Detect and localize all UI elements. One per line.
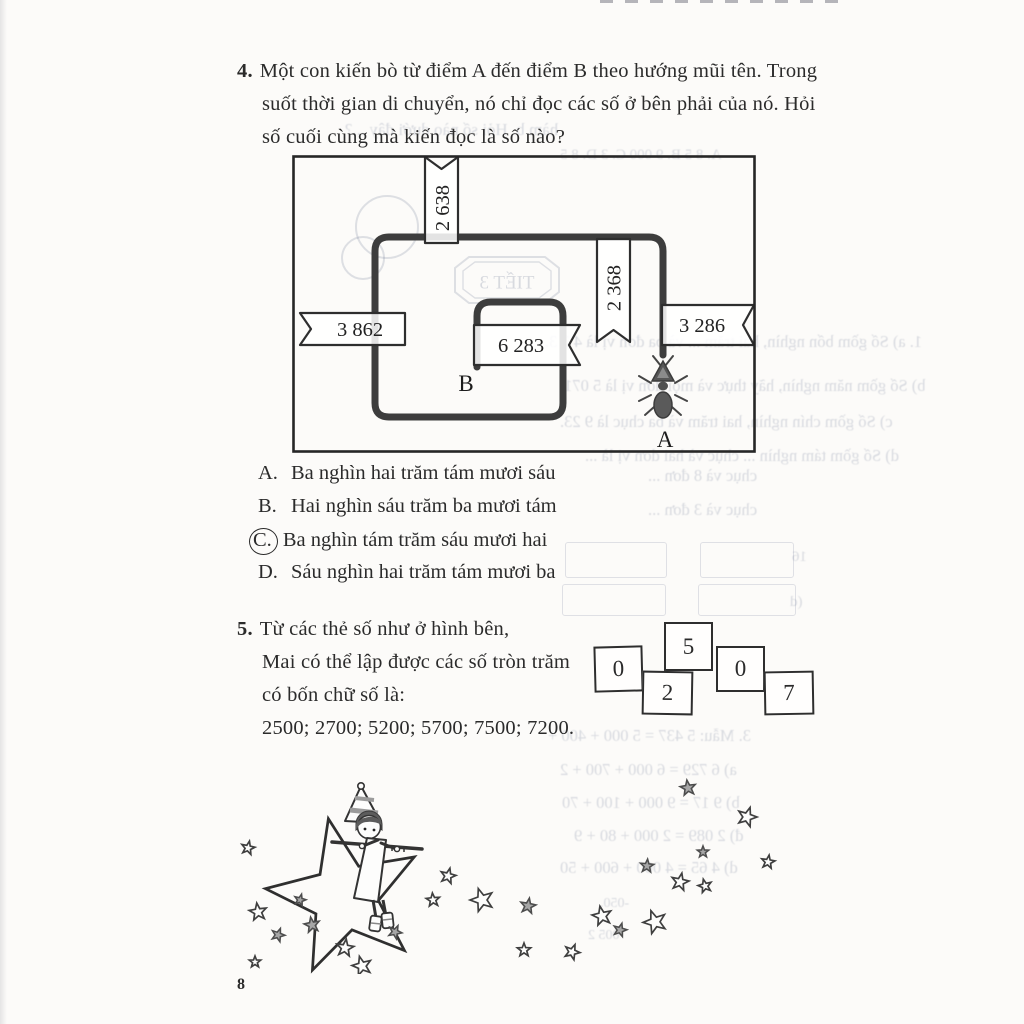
option-a-key: A.	[258, 462, 291, 485]
star-icon	[640, 858, 654, 872]
flag-upper-right: 2 368	[597, 239, 630, 342]
problem-4-text: Một con kiến bò từ điểm A đến điểm B the…	[260, 60, 817, 82]
star-field	[240, 779, 775, 974]
option-d-key: D.	[258, 561, 291, 584]
star-icon	[761, 854, 776, 869]
star-icon	[249, 956, 260, 967]
problem-5-line-1: 5.Từ các thẻ số như ở hình bên,	[237, 618, 509, 641]
star-icon	[293, 893, 307, 906]
ant-icon	[639, 356, 687, 418]
bleedthrough-text: 16	[792, 549, 807, 566]
star-icon	[426, 892, 440, 906]
star-icon	[563, 942, 583, 961]
problem-4-number: 4.	[237, 60, 253, 82]
number-card-5: 5	[664, 622, 713, 671]
flag-top-value: 2 638	[432, 185, 454, 231]
problem-5-line-4: 2500; 2700; 5200; 5700; 7500; 7200.	[262, 717, 574, 740]
flag-right-value: 3 286	[679, 315, 725, 337]
star-icon	[697, 878, 713, 894]
problem-5-text: Từ các thẻ số như ở hình bên,	[260, 618, 510, 640]
flag-inner: 6 283	[474, 325, 580, 365]
star-icon	[303, 916, 320, 933]
star-icon	[439, 866, 457, 884]
option-c-text: Ba nghìn tám trăm sáu mươi hai	[283, 529, 548, 551]
bleedthrough-box	[562, 584, 666, 616]
star-icon	[612, 921, 628, 937]
option-a: A.Ba nghìn hai trăm tám mươi sáu	[258, 462, 556, 485]
option-a-text: Ba nghìn hai trăm tám mươi sáu	[291, 462, 556, 484]
star-icon	[467, 885, 495, 913]
point-b-label: B	[458, 371, 473, 396]
star-icon	[591, 904, 613, 926]
option-d: D.Sáu nghìn hai trăm tám mươi ba	[258, 561, 556, 584]
elf-flute-illustration	[228, 742, 792, 974]
star-icon	[270, 926, 287, 942]
number-card-7: 7	[764, 671, 815, 716]
star-icon	[519, 897, 536, 914]
bleedthrough-badge-text: TIẾT 3	[479, 272, 534, 294]
flag-inner-value: 6 283	[498, 335, 544, 357]
problem-5-line-3: có bốn chữ số là:	[262, 684, 405, 707]
problem-4-line-3: số cuối cùng mà kiến đọc là số nào?	[262, 126, 565, 149]
star-icon	[517, 943, 530, 956]
star-icon	[735, 805, 759, 828]
star-icon	[640, 907, 669, 935]
star-icon	[240, 840, 256, 855]
bleedthrough-text: chục và 8 đơn ...	[648, 466, 757, 486]
problem-5-number: 5.	[237, 618, 253, 640]
bleedthrough-box	[698, 584, 796, 616]
star-icon	[336, 938, 355, 957]
option-b-key: B.	[258, 495, 291, 518]
page-number: 8	[237, 976, 245, 994]
option-b: B.Hai nghìn sáu trăm ba mươi tám	[258, 495, 557, 518]
textbook-page: hàm b. Hỏi số nào dưới đây ...? A. 8 5 B…	[0, 0, 1024, 1024]
star-icon	[697, 846, 708, 857]
flag-left-value: 3 862	[337, 319, 383, 341]
bleedthrough-box	[700, 542, 794, 578]
scan-edge-smudge	[600, 0, 842, 3]
option-d-text: Sáu nghìn hai trăm tám mươi ba	[291, 561, 556, 583]
problem-4-line-1: 4.Một con kiến bò từ điểm A đến điểm B t…	[237, 60, 817, 83]
option-c: C.Ba nghìn tám trăm sáu mươi hai	[258, 528, 547, 555]
star-icon	[350, 954, 373, 974]
number-card-0-left: 0	[593, 645, 643, 692]
option-c-answer-circle: C.	[249, 528, 278, 555]
star-icon	[248, 902, 267, 921]
option-b-text: Hai nghìn sáu trăm ba mươi tám	[291, 495, 557, 517]
flag-left: 3 862	[300, 313, 405, 345]
flag-right: 3 286	[662, 305, 754, 345]
flag-upper-right-value: 2 368	[604, 265, 626, 311]
point-a-label: A	[657, 427, 674, 452]
number-card-2: 2	[642, 671, 694, 716]
number-card-0-right: 0	[716, 646, 765, 692]
ant-path-diagram: TIẾT 3 2 638 2 368 3 862 3 286 6 283	[292, 155, 756, 453]
bleedthrough-text: chục và 3 đơn ...	[648, 500, 757, 520]
problem-4-line-2: suốt thời gian di chuyển, nó chỉ đọc các…	[262, 93, 816, 116]
bleedthrough-box	[565, 542, 667, 578]
star-icon	[679, 779, 696, 795]
problem-5-line-2: Mai có thể lập được các số tròn trăm	[262, 651, 570, 674]
star-icon	[670, 871, 690, 890]
flag-top: 2 638	[425, 157, 458, 243]
